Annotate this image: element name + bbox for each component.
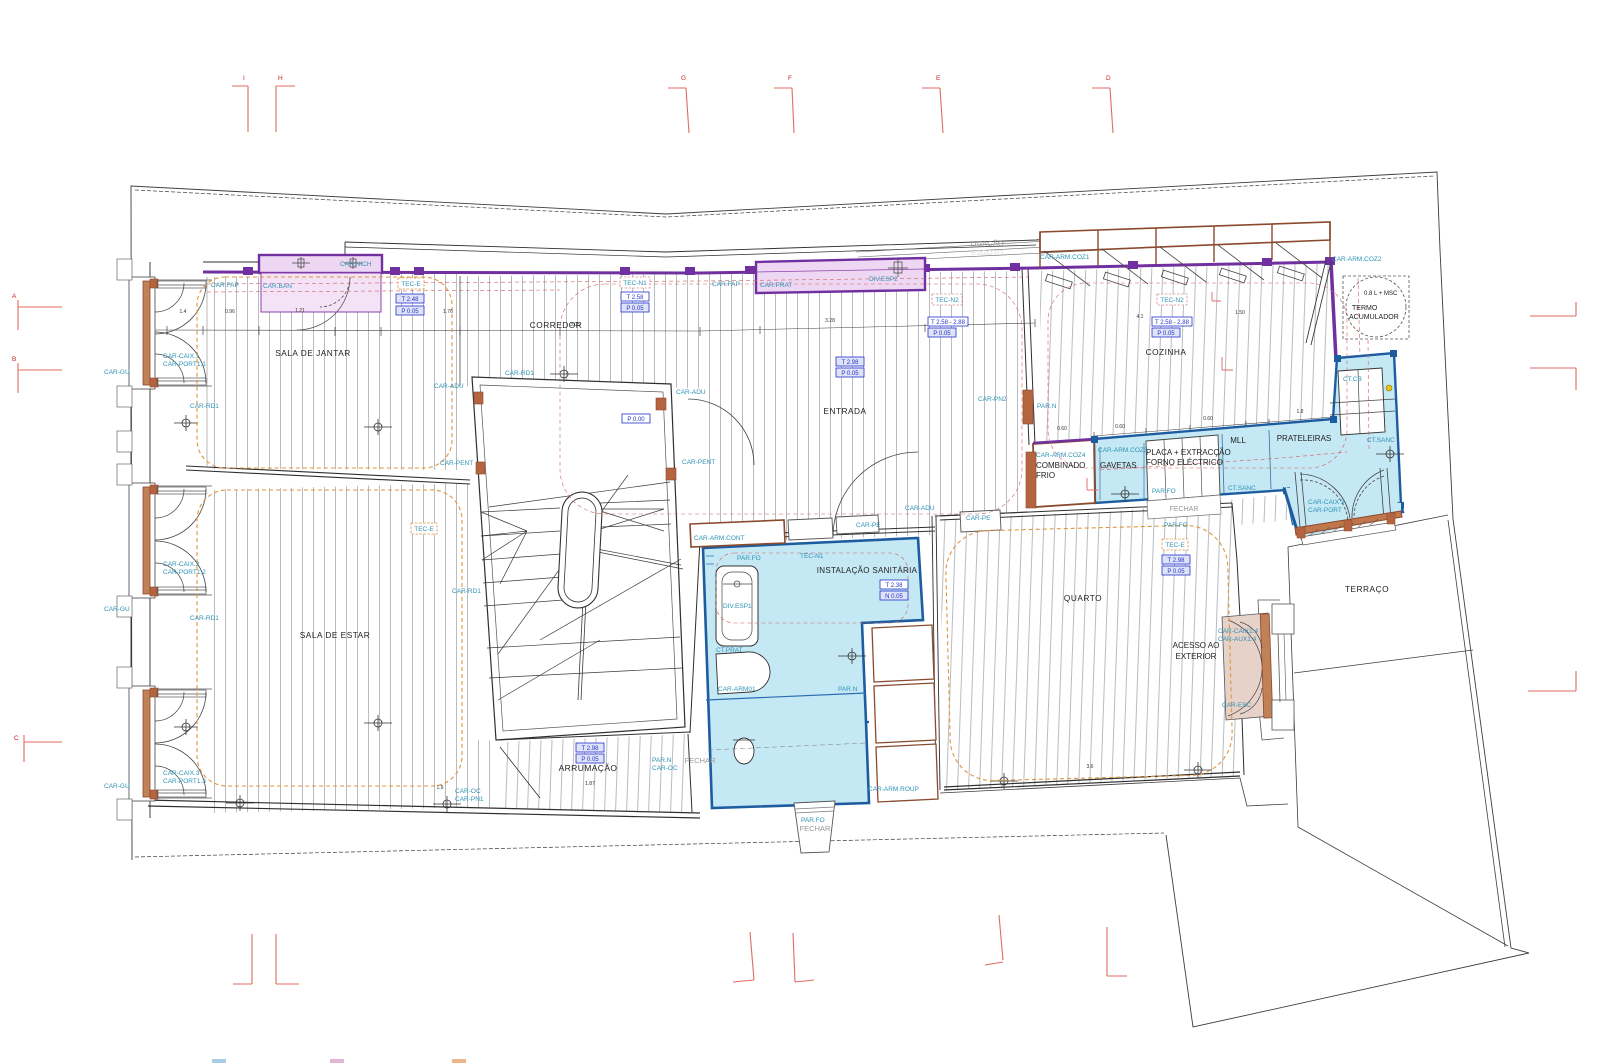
svg-text:TEC-N1: TEC-N1 xyxy=(623,280,647,287)
svg-text:T 2.98: T 2.98 xyxy=(842,360,860,366)
svg-text:P 0.05: P 0.05 xyxy=(626,306,644,312)
svg-text:CAR-PORT1.1: CAR-PORT1.1 xyxy=(163,361,206,368)
svg-text:P 0.05: P 0.05 xyxy=(401,309,419,315)
svg-text:P 0.05: P 0.05 xyxy=(1167,569,1185,575)
svg-text:1.21: 1.21 xyxy=(295,308,305,314)
svg-text:CAR-PE: CAR-PE xyxy=(856,522,881,529)
svg-text:PAR.FO: PAR.FO xyxy=(737,555,761,562)
svg-text:CAR-RD1: CAR-RD1 xyxy=(190,615,219,622)
svg-text:CAR-ADU: CAR-ADU xyxy=(905,505,935,512)
svg-text:PRATELEIRAS: PRATELEIRAS xyxy=(1277,434,1332,443)
svg-text:CAR-OC: CAR-OC xyxy=(455,788,481,795)
svg-text:CAR-ARM.CONT: CAR-ARM.CONT xyxy=(694,535,745,542)
svg-text:PAR.FO: PAR.FO xyxy=(801,817,825,824)
svg-text:FECHAR: FECHAR xyxy=(800,824,831,833)
svg-text:3.28: 3.28 xyxy=(825,318,835,324)
svg-text:CAR-GU: CAR-GU xyxy=(104,369,130,376)
svg-text:CAR-ARM.ROUP: CAR-ARM.ROUP xyxy=(868,786,919,793)
svg-text:N 0.05: N 0.05 xyxy=(885,594,903,600)
svg-text:CAR-OC: CAR-OC xyxy=(652,765,678,772)
svg-text:0.60: 0.60 xyxy=(1115,424,1125,430)
svg-text:CAR-CAIX.1: CAR-CAIX.1 xyxy=(163,353,200,360)
svg-text:CAR-PORT: CAR-PORT xyxy=(1308,507,1342,514)
svg-text:C: C xyxy=(14,735,19,742)
svg-text:FRIO: FRIO xyxy=(1036,471,1055,480)
svg-text:CT.PRAT: CT.PRAT xyxy=(716,647,743,654)
svg-text:PAR.N: PAR.N xyxy=(652,757,672,764)
svg-text:P 0.05: P 0.05 xyxy=(841,371,859,377)
svg-text:1.87: 1.87 xyxy=(585,781,595,787)
svg-text:COMBINADO: COMBINADO xyxy=(1036,461,1085,470)
svg-text:1.8: 1.8 xyxy=(1297,409,1304,415)
svg-text:T 2.38: T 2.38 xyxy=(886,583,904,589)
svg-text:ENTRADA: ENTRADA xyxy=(823,406,866,416)
svg-text:T 2.98: T 2.98 xyxy=(582,746,600,752)
svg-text:E: E xyxy=(936,75,941,82)
svg-text:CAR-ADU: CAR-ADU xyxy=(676,389,706,396)
svg-text:CAR-ARM.COZ2: CAR-ARM.COZ2 xyxy=(1332,256,1382,263)
svg-text:TEC-E: TEC-E xyxy=(1165,542,1185,549)
svg-text:P 0.05: P 0.05 xyxy=(581,757,599,763)
svg-text:CT.CB: CT.CB xyxy=(1343,376,1362,383)
svg-text:CAR-CAIX.3: CAR-CAIX.3 xyxy=(163,770,200,777)
svg-text:3.05: 3.05 xyxy=(570,322,580,328)
svg-text:CAR-GU: CAR-GU xyxy=(104,783,130,790)
svg-text:SALA DE JANTAR: SALA DE JANTAR xyxy=(275,348,351,358)
svg-text:CAR-GU: CAR-GU xyxy=(104,606,130,613)
svg-text:CAR-ARM01: CAR-ARM01 xyxy=(718,686,756,693)
svg-text:PAR.FO: PAR.FO xyxy=(1152,488,1176,495)
svg-text:GAVETAS: GAVETAS xyxy=(1100,461,1137,470)
svg-text:EXTERIOR: EXTERIOR xyxy=(1176,652,1217,661)
svg-text:CAR.FAP: CAR.FAP xyxy=(712,281,740,288)
svg-text:T 2.58 - 2.88: T 2.58 - 2.88 xyxy=(1155,320,1190,326)
svg-text:PAR.N: PAR.N xyxy=(838,686,858,693)
svg-text:T 2.58 - 2.88: T 2.58 - 2.88 xyxy=(931,320,966,326)
svg-text:ACESSO AO: ACESSO AO xyxy=(1173,641,1220,650)
svg-text:1.9: 1.9 xyxy=(437,785,444,791)
svg-text:CAR-PN2: CAR-PN2 xyxy=(978,396,1007,403)
svg-text:0.60: 0.60 xyxy=(1057,426,1067,432)
svg-text:T 2.48: T 2.48 xyxy=(402,297,420,303)
svg-text:DIV.ESP1: DIV.ESP1 xyxy=(723,603,752,610)
svg-text:CAR-RD1: CAR-RD1 xyxy=(190,403,219,410)
svg-text:INSTALAÇÃO SANITÁRIA: INSTALAÇÃO SANITÁRIA xyxy=(817,566,918,575)
svg-text:COZINHA: COZINHA xyxy=(1146,347,1187,357)
svg-text:ACUMULADOR: ACUMULADOR xyxy=(1349,314,1399,321)
svg-text:CAR-ADU: CAR-ADU xyxy=(434,383,464,390)
svg-text:CAR-RD1: CAR-RD1 xyxy=(452,588,481,595)
svg-text:CAR.NICH: CAR.NICH xyxy=(340,261,372,268)
svg-text:ESGOTO: ESGOTO xyxy=(971,248,1003,257)
svg-text:SALA DE ESTAR: SALA DE ESTAR xyxy=(300,630,370,640)
svg-text:MLL: MLL xyxy=(1230,436,1246,445)
svg-text:QUARTO: QUARTO xyxy=(1064,593,1102,603)
svg-text:CAR-RD1: CAR-RD1 xyxy=(505,370,534,377)
svg-text:0.8 L + MSC: 0.8 L + MSC xyxy=(1364,291,1398,297)
svg-text:CT.SANC: CT.SANC xyxy=(1367,437,1395,444)
svg-text:FECHAR: FECHAR xyxy=(685,756,716,765)
svg-text:I: I xyxy=(243,75,245,82)
svg-text:TEC-N2: TEC-N2 xyxy=(1160,297,1184,304)
svg-text:CAR-PENT: CAR-PENT xyxy=(682,459,715,466)
svg-text:CAR-ARM.COZ1: CAR-ARM.COZ1 xyxy=(1040,254,1090,261)
svg-text:T 2.98: T 2.98 xyxy=(1168,558,1186,564)
svg-text:H: H xyxy=(278,75,283,82)
svg-text:CAR-CAIX.2: CAR-CAIX.2 xyxy=(163,561,200,568)
svg-text:TERMO: TERMO xyxy=(1352,305,1378,312)
svg-text:4.1: 4.1 xyxy=(1137,314,1144,320)
svg-text:CAR-PE: CAR-PE xyxy=(966,515,991,522)
svg-text:PAR.FO: PAR.FO xyxy=(1164,522,1188,529)
svg-text:T 2.58: T 2.58 xyxy=(627,295,645,301)
svg-text:TEC-N2: TEC-N2 xyxy=(935,297,959,304)
svg-text:D: D xyxy=(1106,75,1111,82)
svg-text:TEC-E: TEC-E xyxy=(414,526,434,533)
svg-text:0.96: 0.96 xyxy=(225,309,235,315)
svg-text:P 0.05: P 0.05 xyxy=(1157,331,1175,337)
svg-text:PLACA + EXTRACÇÃO: PLACA + EXTRACÇÃO xyxy=(1146,448,1231,457)
svg-text:G: G xyxy=(681,75,686,82)
svg-text:3.6: 3.6 xyxy=(1087,764,1094,770)
svg-text:CAR-PENT: CAR-PENT xyxy=(440,460,473,467)
svg-text:ARRUMAÇÃO: ARRUMAÇÃO xyxy=(559,763,618,773)
svg-text:CAR-PN1: CAR-PN1 xyxy=(455,796,484,803)
svg-text:LIGAÇÃO: LIGAÇÃO xyxy=(970,239,1004,248)
svg-text:A: A xyxy=(12,293,17,300)
svg-text:FORNO ELÉCTRICO: FORNO ELÉCTRICO xyxy=(1146,458,1223,467)
svg-text:CAR-PORT1.3: CAR-PORT1.3 xyxy=(163,778,206,785)
svg-text:PAR.N: PAR.N xyxy=(1037,403,1057,410)
svg-text:TEC-N1: TEC-N1 xyxy=(800,553,824,560)
svg-text:TEC-E: TEC-E xyxy=(401,281,421,288)
svg-text:CAR.FAP: CAR.FAP xyxy=(211,282,239,289)
svg-text:1.50: 1.50 xyxy=(1235,310,1245,316)
svg-text:P 0.00: P 0.00 xyxy=(627,417,645,423)
svg-text:1.4: 1.4 xyxy=(180,309,187,315)
svg-text:CAR-CAIX 3: CAR-CAIX 3 xyxy=(1308,499,1345,506)
svg-text:CAR-ARM.COZ3: CAR-ARM.COZ3 xyxy=(1098,447,1148,454)
svg-text:FECHAR: FECHAR xyxy=(1170,506,1199,513)
svg-text:CAR-PORT1.2: CAR-PORT1.2 xyxy=(163,569,206,576)
svg-text:CAR-ESC: CAR-ESC xyxy=(1222,702,1252,709)
svg-text:F: F xyxy=(788,75,792,82)
svg-text:1.76: 1.76 xyxy=(443,309,453,315)
svg-text:DIV.ESP2: DIV.ESP2 xyxy=(869,276,898,283)
svg-text:TERRAÇO: TERRAÇO xyxy=(1345,584,1389,594)
svg-text:CAR-ARM.COZ4: CAR-ARM.COZ4 xyxy=(1036,452,1086,459)
svg-text:B: B xyxy=(12,356,16,363)
svg-text:CAR.PRAT: CAR.PRAT xyxy=(760,282,792,289)
svg-text:CT.SANC: CT.SANC xyxy=(1228,485,1256,492)
svg-text:CAR.BAN: CAR.BAN xyxy=(263,283,292,290)
svg-text:P 0.05: P 0.05 xyxy=(933,331,951,337)
svg-text:0.60: 0.60 xyxy=(1203,416,1213,422)
svg-text:CAR-CAIX1.4: CAR-CAIX1.4 xyxy=(1218,628,1258,635)
svg-text:CAR-AUX1.4: CAR-AUX1.4 xyxy=(1218,636,1257,643)
